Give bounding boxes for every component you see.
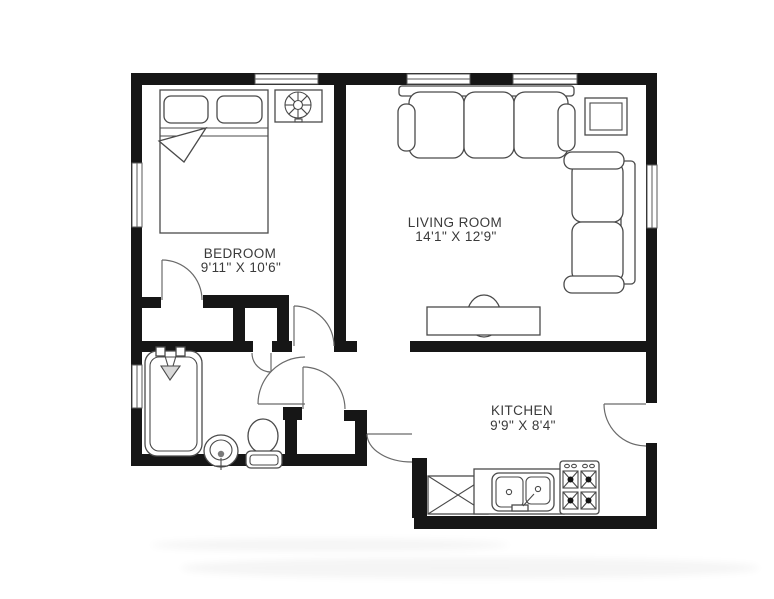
bathroom-door-icon xyxy=(252,353,271,372)
living-room-dimensions: 14'1" X 12'9" xyxy=(415,229,497,244)
end-table-icon xyxy=(585,98,627,135)
hall-closet-door-right-icon xyxy=(303,367,345,409)
kitchen-entry-door-icon xyxy=(604,404,646,446)
living-room-label: LIVING ROOM xyxy=(408,215,502,230)
page-shadow xyxy=(150,539,760,578)
floor-plan-page: BEDROOM 9'11" X 10'6" LIVING ROOM 14'1" … xyxy=(0,0,774,599)
floor-plan: BEDROOM 9'11" X 10'6" LIVING ROOM 14'1" … xyxy=(0,0,774,599)
kitchen-dimensions: 9'9" X 8'4" xyxy=(490,418,556,433)
coffee-table-icon xyxy=(427,295,540,337)
window-icon xyxy=(255,74,318,84)
loveseat-icon xyxy=(564,152,635,293)
window-icon xyxy=(513,74,577,84)
kitchen-sink-icon xyxy=(474,469,564,514)
bedroom-dimensions: 9'11" X 10'6" xyxy=(201,260,282,275)
window-icon xyxy=(132,365,142,408)
stove-icon xyxy=(560,461,599,514)
window-icon xyxy=(647,165,657,228)
hall-kitchen-door-icon xyxy=(367,434,412,462)
window-icon xyxy=(407,74,470,84)
bedroom-entry-door-icon xyxy=(294,306,334,346)
bathtub-icon xyxy=(145,347,202,456)
sofa-icon xyxy=(398,86,575,158)
bedroom-label: BEDROOM xyxy=(204,246,277,261)
double-bed-icon xyxy=(159,90,268,233)
window-icon xyxy=(132,163,142,227)
bedroom-closet-door-icon xyxy=(162,260,202,300)
toilet-icon xyxy=(246,419,282,468)
hall-closet-door-left-icon xyxy=(258,357,305,404)
kitchen-label: KITCHEN xyxy=(491,403,553,418)
ceiling-fan-icon xyxy=(275,90,322,122)
